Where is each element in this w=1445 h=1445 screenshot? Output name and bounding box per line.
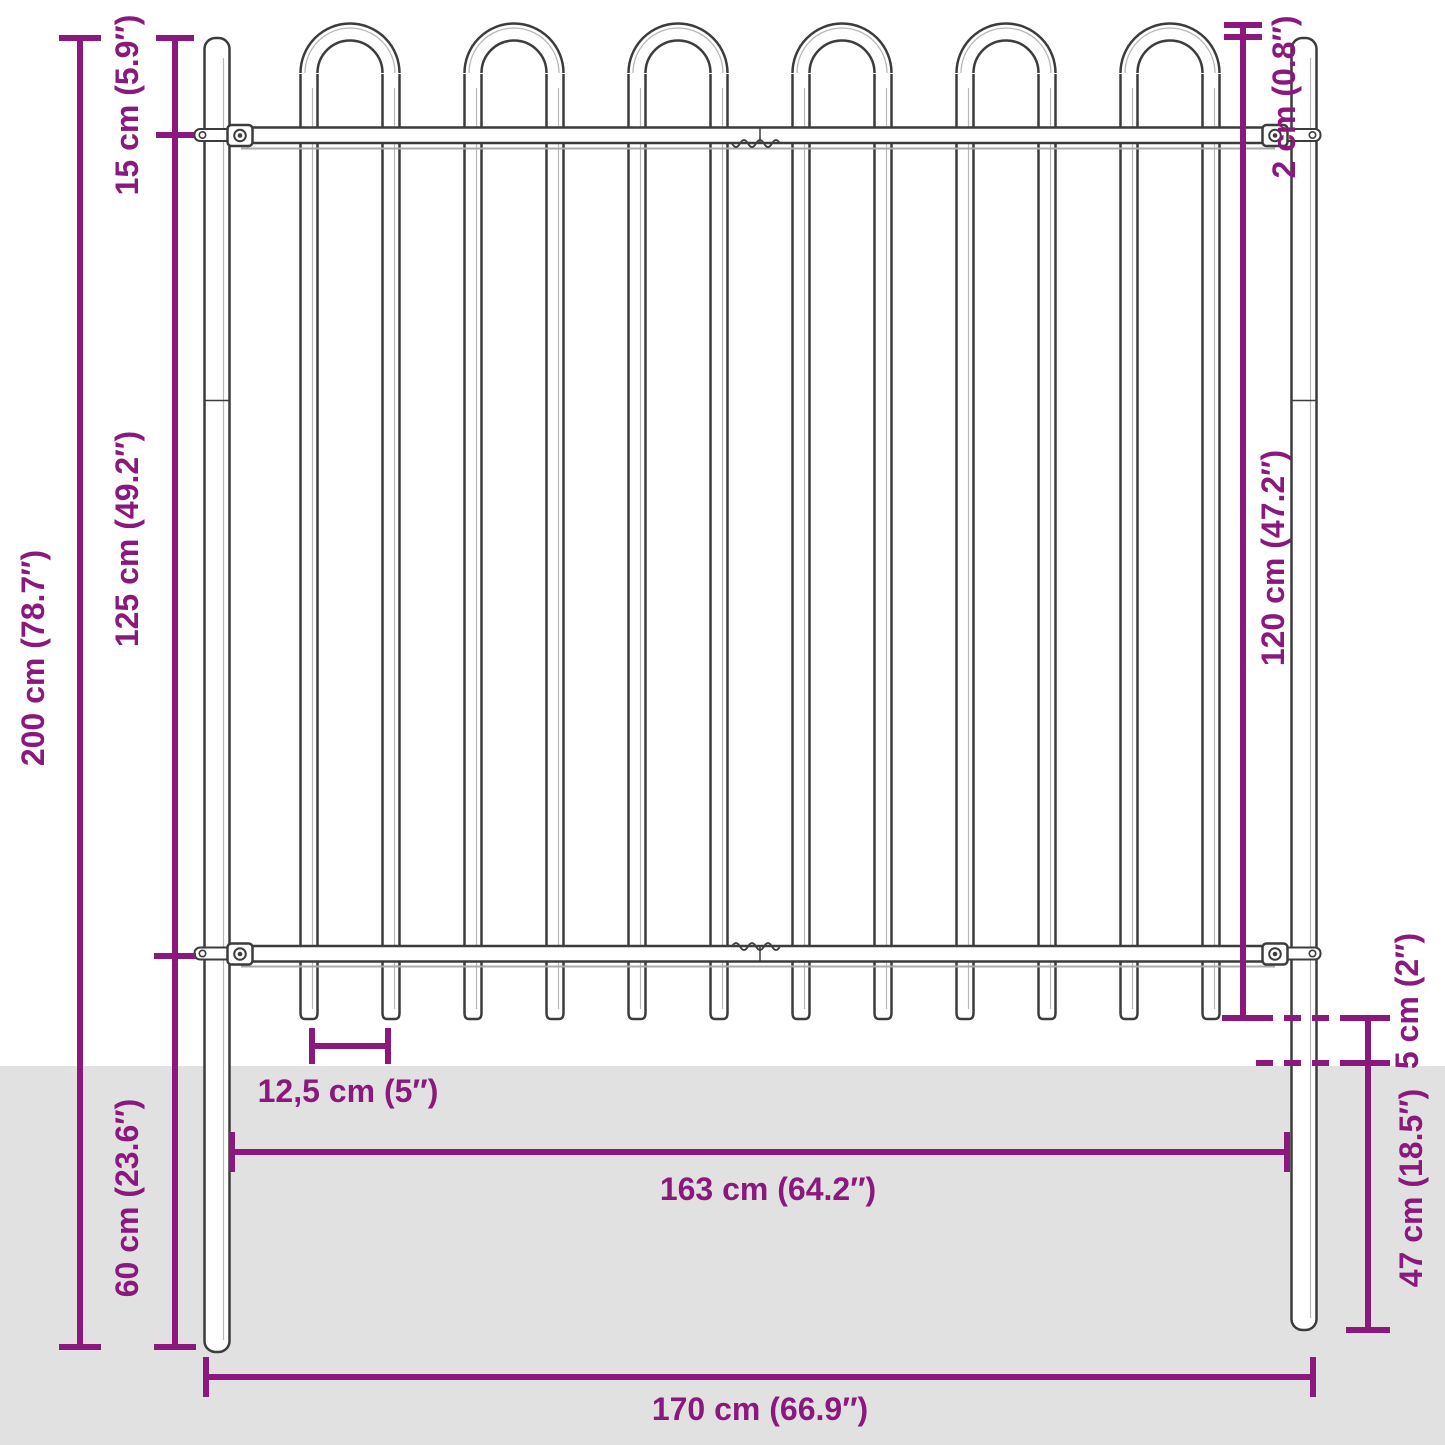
left-post <box>205 38 230 1352</box>
dim-label-rail-to-rail: 125 cm (49.2″) <box>111 431 143 647</box>
dim-label-bar-spacing: 12,5 cm (5″) <box>258 1075 439 1107</box>
dim-label-total-height: 200 cm (78.7″) <box>17 550 49 766</box>
hoop-top <box>629 23 728 73</box>
hoop-top <box>793 23 892 73</box>
fence-bar <box>1203 74 1220 1019</box>
fence-bar <box>957 74 974 1019</box>
fence-bar <box>465 74 482 1019</box>
fence-bar <box>793 74 810 1019</box>
dim-label-outer-width: 170 cm (66.9″) <box>652 1393 868 1425</box>
fence-drawing <box>0 0 1445 1445</box>
fence-bar <box>383 74 400 1019</box>
fence-bar <box>875 74 892 1019</box>
hoop-top <box>1121 23 1220 73</box>
hoop-top <box>957 23 1056 73</box>
dim-label-spike-above-ground: 5 cm (2″) <box>1391 933 1423 1069</box>
fence-bar <box>547 74 564 1019</box>
rail-clamps <box>195 125 1321 965</box>
right-post <box>1292 38 1317 1330</box>
fence-dimension-diagram: 200 cm (78.7″) 15 cm (5.9″) 125 cm (49.2… <box>0 0 1445 1445</box>
fence-bar <box>629 74 646 1019</box>
dim-label-hoop-above-post: 2 cm (0.8″) <box>1268 16 1300 179</box>
dim-label-inner-width: 163 cm (64.2″) <box>660 1173 876 1205</box>
fence-bar <box>1121 74 1138 1019</box>
hoop-top <box>465 23 564 73</box>
dim-label-post-below-ground: 47 cm (18.5″) <box>1395 1089 1427 1288</box>
dim-label-ground-depth: 60 cm (23.6″) <box>111 1099 143 1298</box>
fence-bar <box>711 74 728 1019</box>
dim-label-post-top-to-rail: 15 cm (5.9″) <box>111 15 143 196</box>
fence-bar <box>1039 74 1056 1019</box>
hoop-top <box>301 23 400 73</box>
dim-label-rail-to-spike: 120 cm (47.2″) <box>1257 450 1289 666</box>
fence-bars-and-hoops <box>301 23 1220 1019</box>
fence-bar <box>301 74 318 1019</box>
